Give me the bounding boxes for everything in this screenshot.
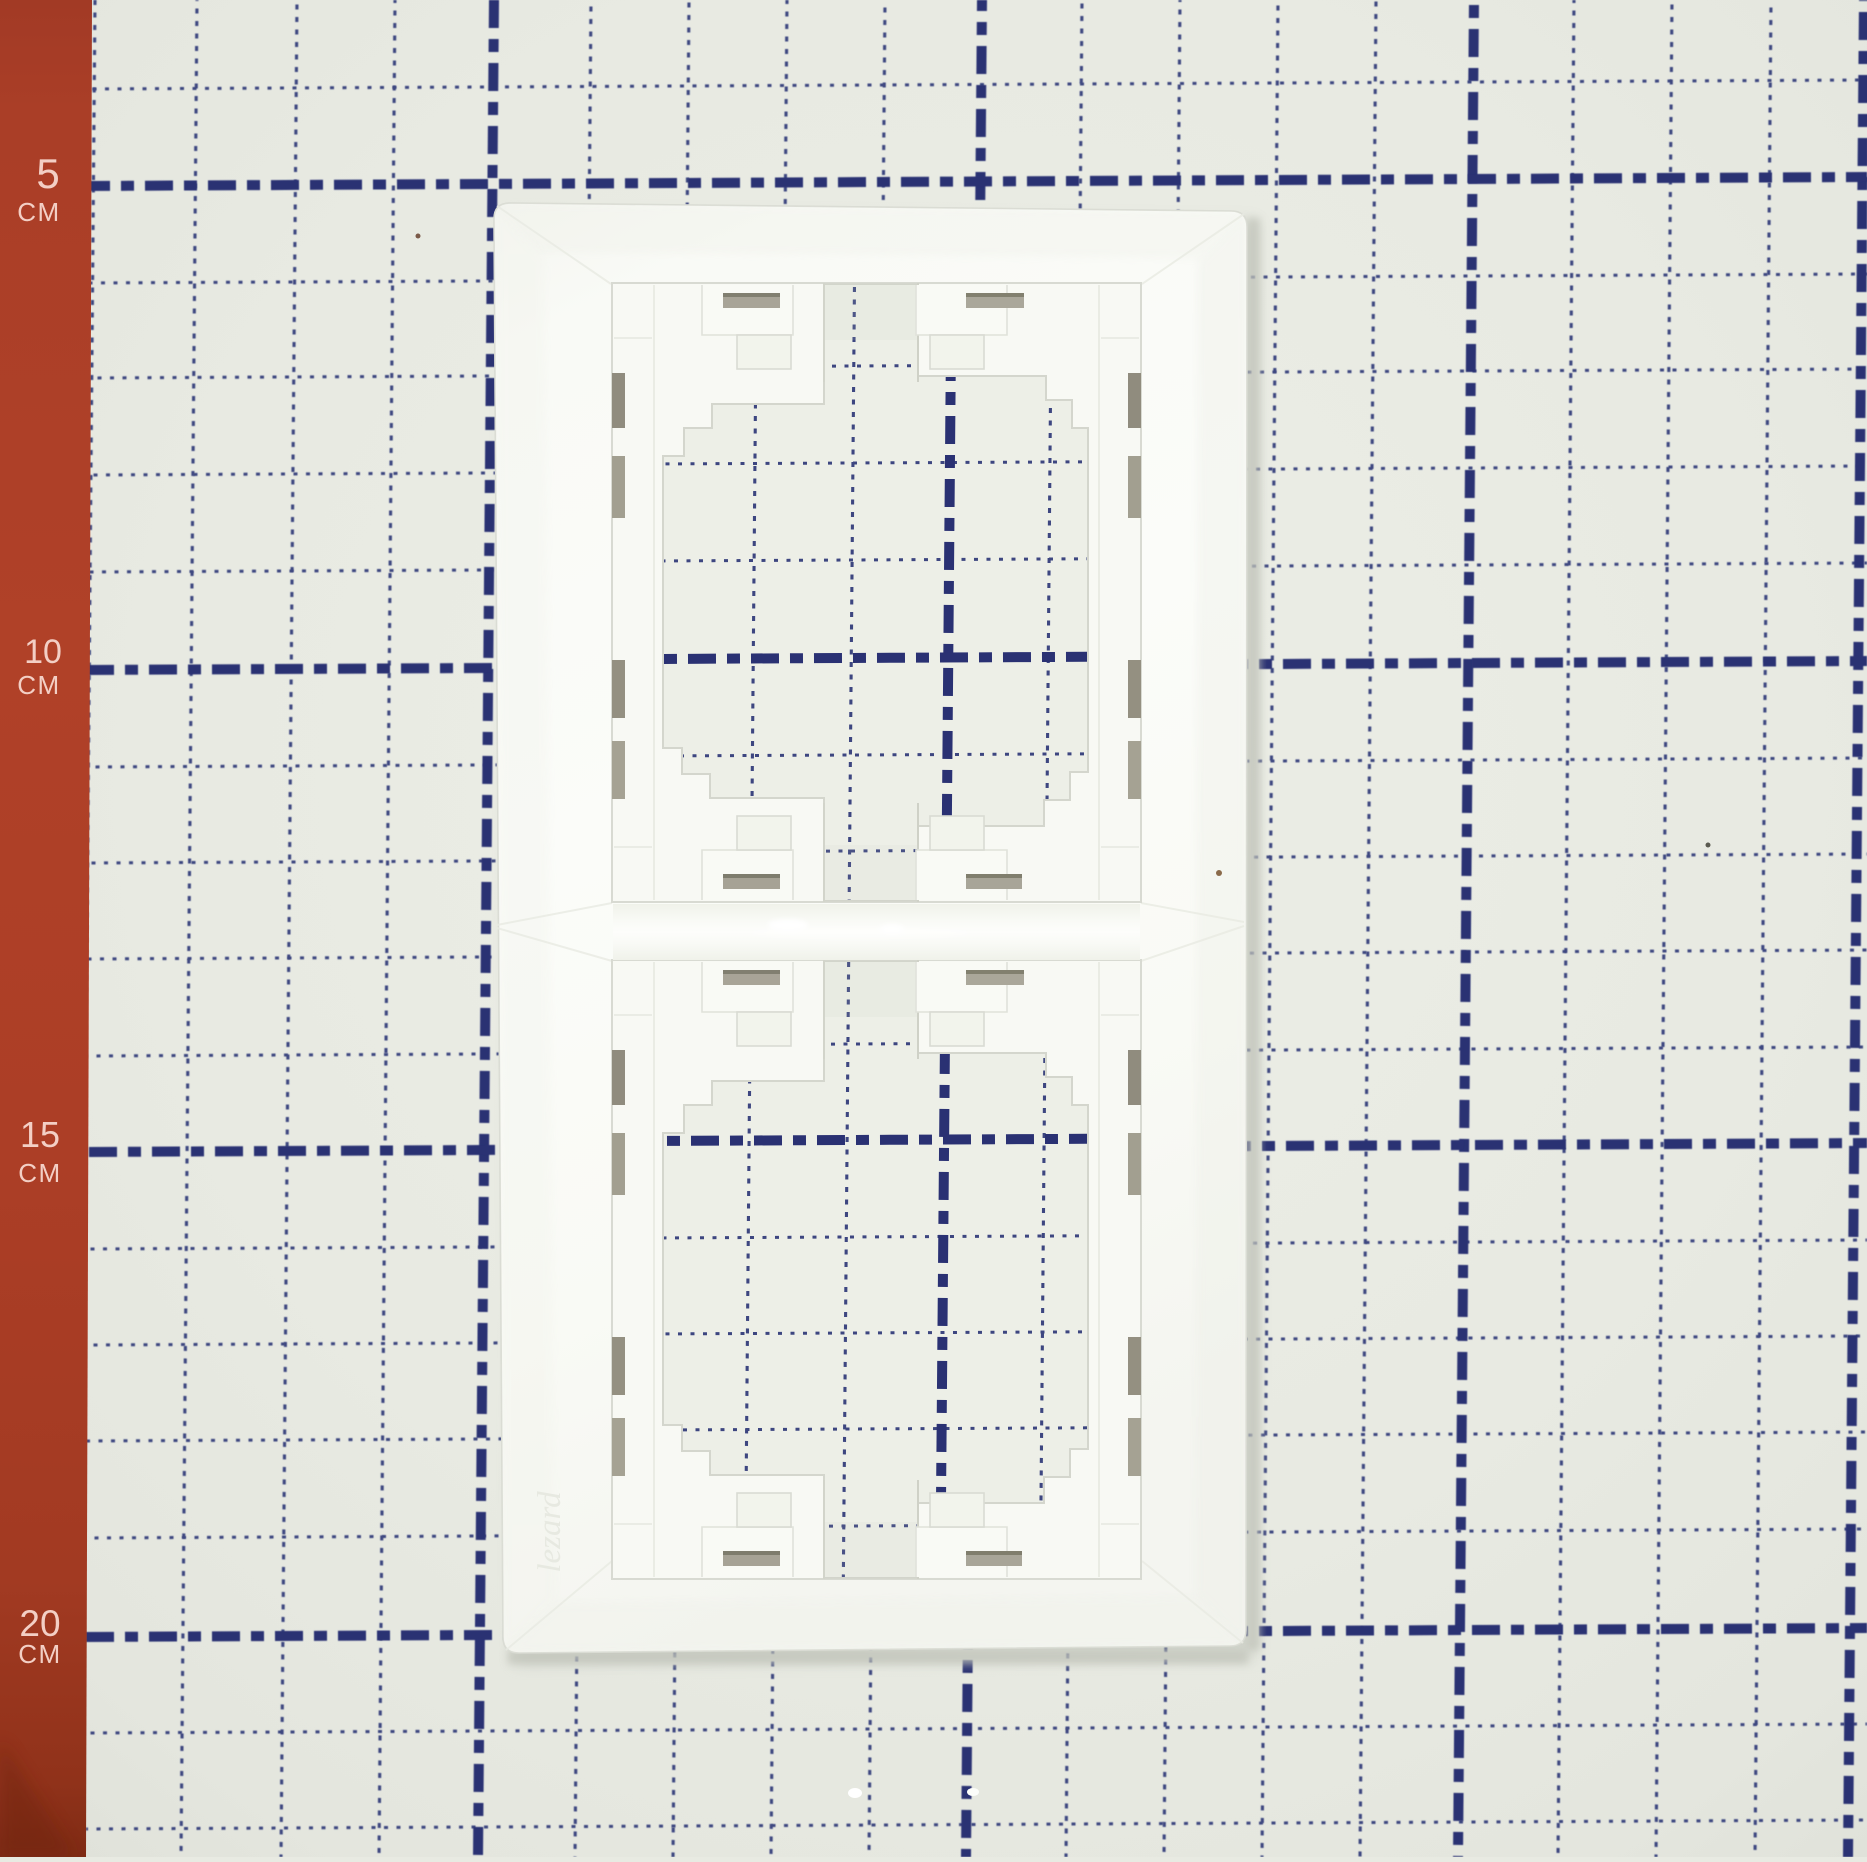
svg-text:10: 10 bbox=[24, 633, 62, 671]
svg-text:lezard: lezard bbox=[532, 1491, 568, 1573]
svg-text:CM: CM bbox=[18, 1639, 61, 1669]
svg-text:5: 5 bbox=[36, 150, 59, 197]
svg-text:15: 15 bbox=[20, 1114, 60, 1155]
svg-text:20: 20 bbox=[19, 1603, 60, 1644]
svg-text:CM: CM bbox=[18, 1158, 61, 1188]
svg-text:CM: CM bbox=[17, 670, 60, 700]
svg-text:CM: CM bbox=[17, 197, 60, 227]
